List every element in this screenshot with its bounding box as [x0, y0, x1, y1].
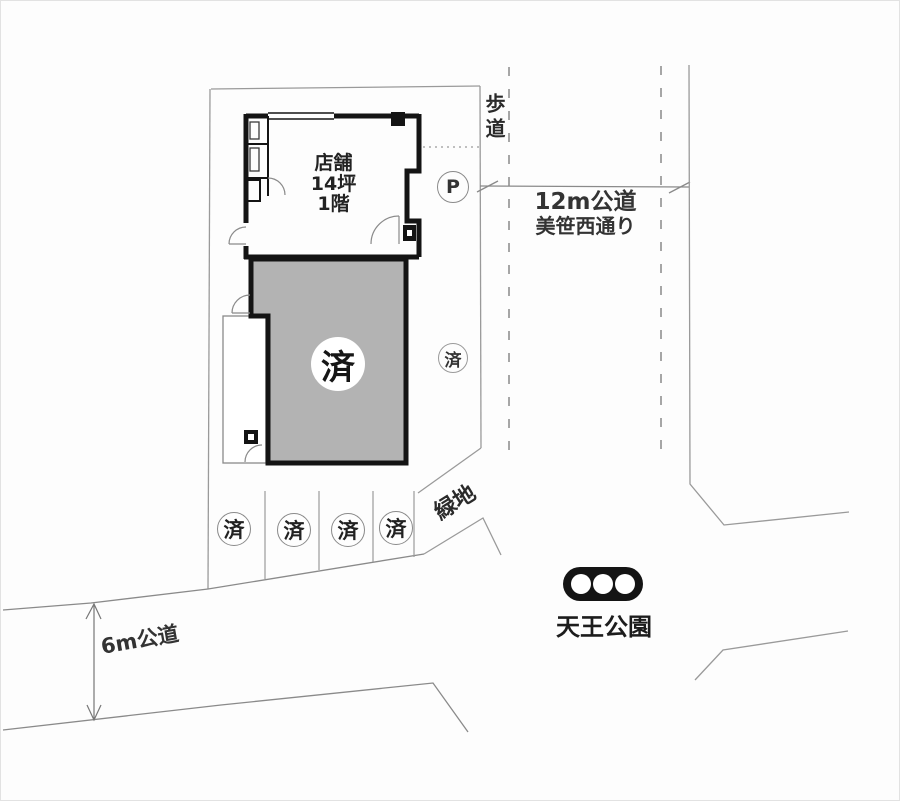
parking-spot-1-badge: 済: [217, 512, 251, 546]
parking-spot-3-badge: 済: [331, 513, 365, 547]
shop-name: 店舗: [291, 153, 376, 174]
parking-spot-2-badge: 済: [277, 513, 311, 547]
road-12m-width: 12m公道: [503, 190, 668, 215]
shop-unit-label: 店舗 14坪 1階: [291, 153, 376, 215]
park-icon-dot: [571, 574, 591, 594]
park-icon-dot: [593, 574, 613, 594]
interior-partitions: [246, 116, 268, 201]
parking-spot-1-status: 済: [224, 514, 245, 544]
dimension-6m-arrow: [86, 604, 101, 720]
lane-dashed-lines: [509, 66, 661, 459]
park-icon-dot: [615, 574, 635, 594]
sidewalk-label: 歩道: [480, 93, 509, 143]
sold-unit-badge-text: 済: [321, 340, 355, 389]
plan-geometry: [1, 1, 900, 801]
sold-unit-badge: 済: [311, 337, 365, 391]
parking-p-marker: P: [437, 171, 469, 203]
parking-spot-3-status: 済: [338, 515, 359, 545]
parking-spot-4-status: 済: [386, 513, 407, 543]
parking-spot-4-badge: 済: [379, 511, 413, 545]
road-12m-name: 美笹西通り: [503, 215, 668, 238]
plumbing-fixtures: [250, 122, 259, 171]
parking-spot-2-status: 済: [284, 515, 305, 545]
shop-area: 14坪: [291, 174, 376, 195]
side-lot-sold-badge: 済: [438, 343, 468, 373]
park-boundary: [689, 65, 849, 680]
shop-floor: 1階: [291, 194, 376, 215]
road-12m-label: 12m公道 美笹西通り: [503, 190, 668, 238]
parking-p-label: P: [446, 176, 460, 198]
site-plan: 歩道 P 12m公道 美笹西通り 店舗 14坪 1階 済 済 済 済 済 済 緑…: [0, 0, 900, 801]
park-name-label: 天王公園: [539, 607, 669, 642]
park-icon: [563, 567, 643, 601]
side-lot-sold-text: 済: [445, 346, 462, 371]
